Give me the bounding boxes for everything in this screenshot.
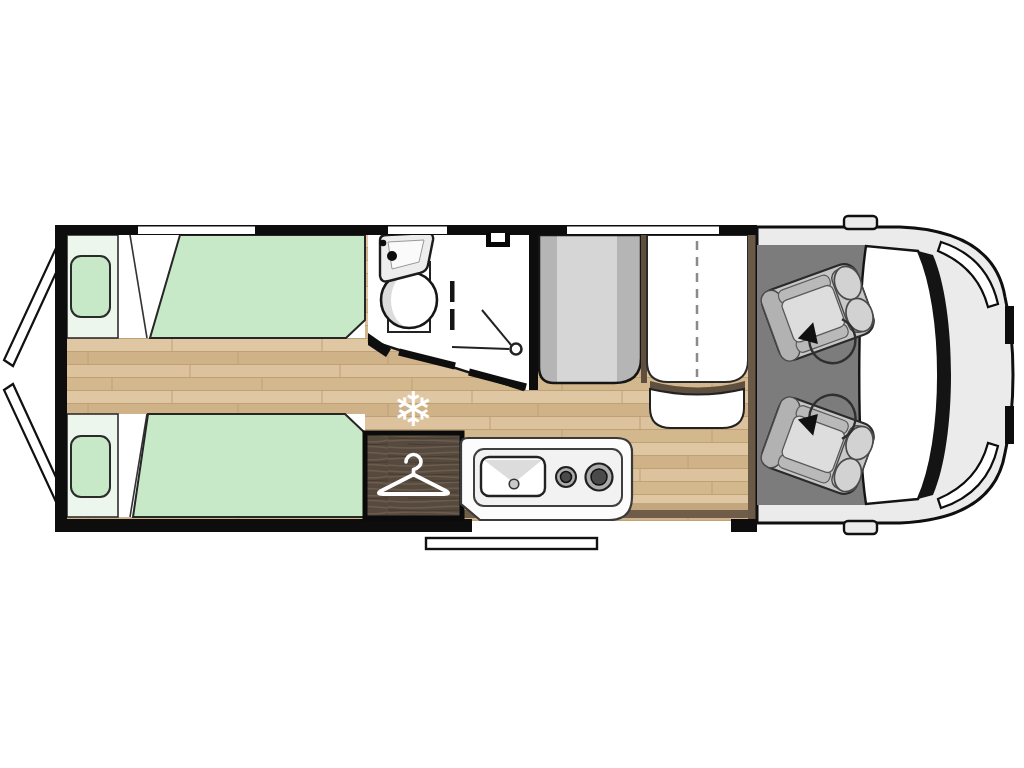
bathroom-wall-right (529, 233, 538, 390)
rear-twin-bed-top (67, 235, 365, 338)
bench-stripe-right (617, 235, 641, 383)
window-2 (388, 227, 447, 235)
rear-twin-bed-bottom (67, 414, 365, 517)
rear-wall (55, 225, 67, 531)
burner-large (586, 464, 613, 491)
pillow (71, 256, 110, 317)
shower-screen-dash-1 (450, 281, 455, 302)
bench-stripe-left (539, 235, 557, 383)
shower-screen-dash-2 (450, 309, 455, 330)
mattress (150, 235, 365, 338)
entry-step (426, 538, 597, 549)
small-bench (650, 389, 744, 428)
windshield (859, 246, 938, 504)
sink-tap-dot-large (387, 251, 397, 261)
kitchen-unit (461, 438, 632, 520)
dinette-bench-seat (539, 235, 641, 383)
mattress (133, 414, 365, 517)
side-mirror-bottom (844, 521, 877, 534)
wardrobe (365, 433, 462, 518)
cab-front (757, 216, 1014, 534)
pillow (71, 436, 110, 497)
dinette-table (647, 235, 748, 382)
grille-notch-top (1005, 306, 1014, 344)
window-3 (567, 227, 719, 235)
roof-vent (486, 233, 510, 247)
burner-small (556, 467, 576, 487)
side-mirror-top (844, 216, 877, 229)
window-1 (138, 227, 255, 235)
bottom-wall-right (731, 519, 757, 532)
sink-tap-dot-small (380, 240, 387, 247)
floorplan-svg: ❄ (0, 0, 1024, 768)
floorplan-stage: ❄ (0, 0, 1024, 768)
bottom-wall-left (55, 519, 472, 532)
kitchen-sink-drain (509, 479, 519, 489)
snowflake-icon: ❄ (393, 381, 433, 437)
grille-notch-bottom (1005, 406, 1014, 444)
